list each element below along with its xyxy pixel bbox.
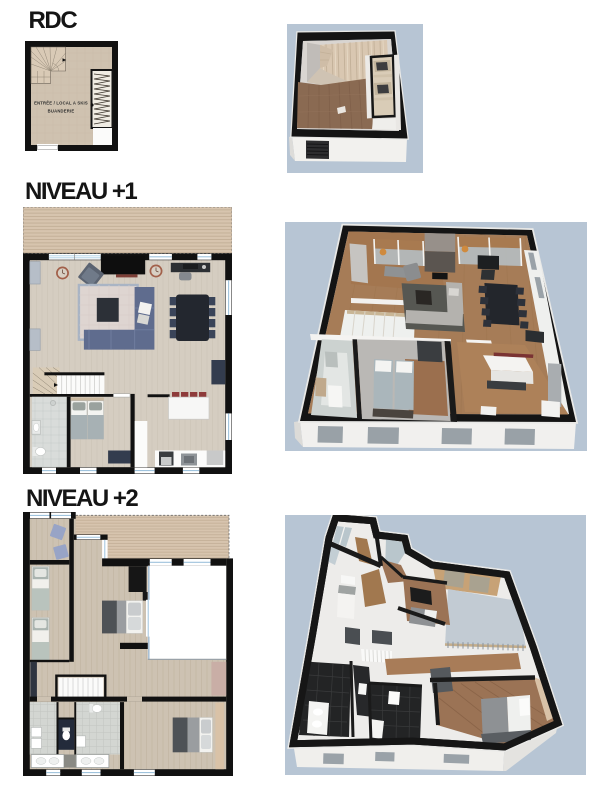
svg-text:BUANDERIE: BUANDERIE (48, 109, 75, 114)
svg-text:ENTRÉE / LOCAL A SKIS: ENTRÉE / LOCAL A SKIS (34, 101, 88, 106)
